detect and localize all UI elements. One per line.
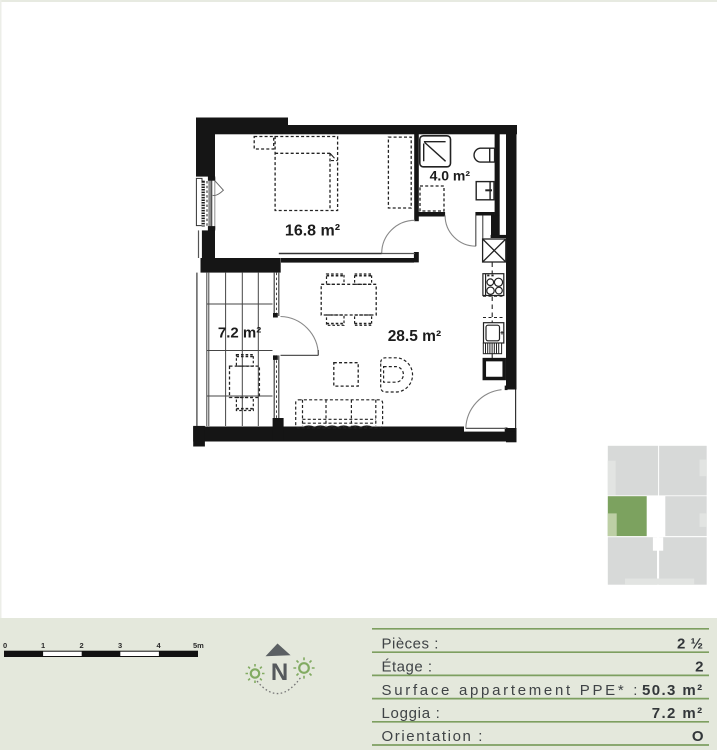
svg-text:0: 0 (3, 641, 7, 650)
svg-text:50.3 m²: 50.3 m² (642, 682, 704, 699)
svg-text:O: O (692, 728, 704, 745)
svg-text:Étage :: Étage : (382, 659, 433, 676)
svg-text:7.2 m²: 7.2 m² (652, 705, 704, 722)
svg-text:Surface appartement PPE* :: Surface appartement PPE* : (382, 682, 641, 699)
svg-text:2: 2 (695, 659, 703, 676)
svg-text:Loggia :: Loggia : (382, 705, 441, 722)
svg-text:Orientation :: Orientation : (382, 728, 485, 745)
svg-text:4.0 m²: 4.0 m² (430, 167, 471, 183)
svg-text:Pièces :: Pièces : (382, 635, 439, 652)
svg-text:7.2 m²: 7.2 m² (218, 325, 261, 342)
svg-text:5m: 5m (193, 641, 204, 650)
svg-text:28.5 m²: 28.5 m² (388, 328, 441, 345)
svg-text:3: 3 (118, 641, 122, 650)
svg-text:N: N (271, 659, 288, 686)
svg-text:1: 1 (41, 641, 45, 650)
svg-text:2 ½: 2 ½ (677, 635, 704, 652)
svg-text:2: 2 (80, 641, 84, 650)
svg-text:16.8 m²: 16.8 m² (285, 222, 340, 239)
